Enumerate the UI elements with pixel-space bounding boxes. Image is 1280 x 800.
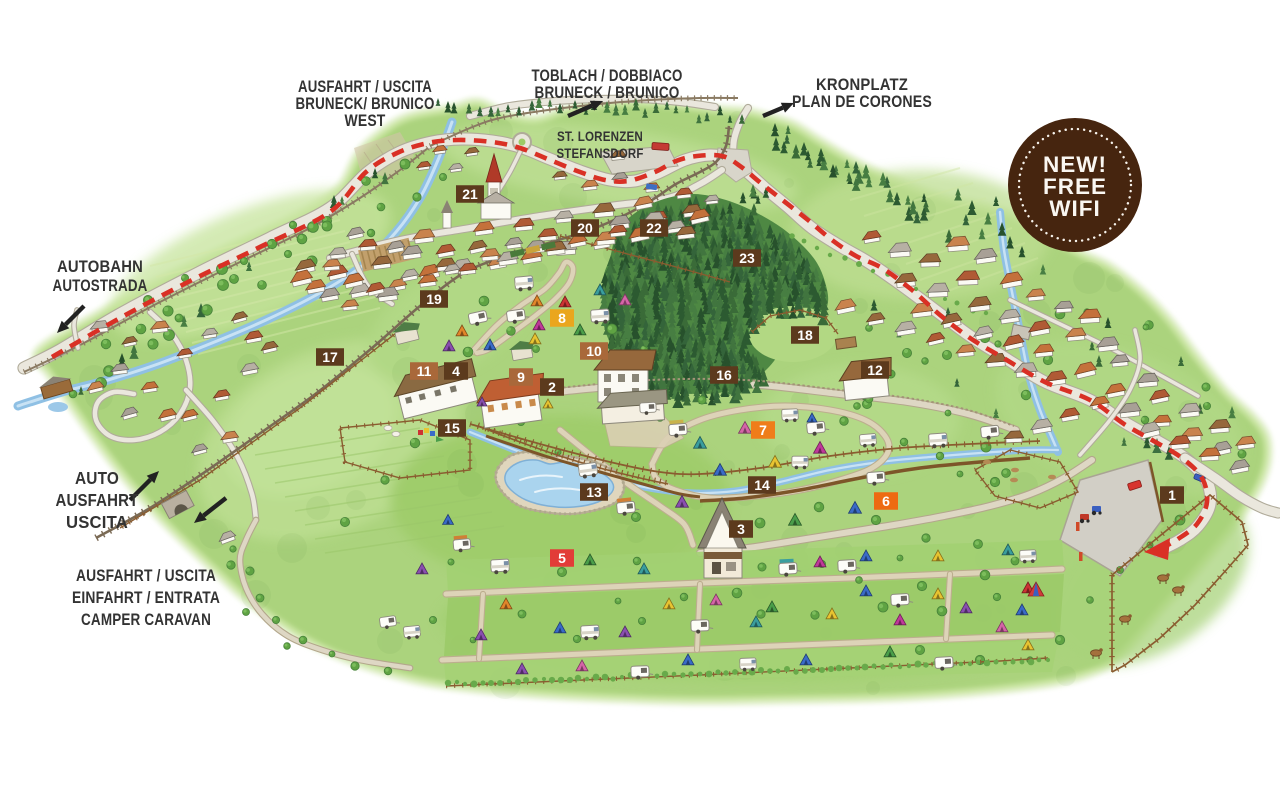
svg-text:2: 2 [548, 379, 556, 395]
svg-text:7: 7 [759, 422, 767, 438]
svg-text:21: 21 [462, 186, 478, 202]
svg-text:TOBLACH / DOBBIACOBRUNECK / BR: TOBLACH / DOBBIACOBRUNECK / BRUNICO [532, 67, 683, 102]
svg-text:15: 15 [444, 420, 460, 436]
svg-text:AUSFAHRT / USCITAEINFAHRT / EN: AUSFAHRT / USCITAEINFAHRT / ENTRATACAMPE… [72, 567, 220, 629]
svg-text:8: 8 [558, 310, 566, 326]
svg-text:18: 18 [797, 327, 813, 343]
svg-text:6: 6 [882, 493, 890, 509]
svg-text:5: 5 [558, 550, 566, 566]
svg-text:NEW!FREEWIFI: NEW!FREEWIFI [1043, 152, 1107, 221]
svg-text:1: 1 [1168, 487, 1176, 503]
svg-text:10: 10 [586, 343, 602, 359]
svg-text:13: 13 [586, 484, 602, 500]
svg-text:22: 22 [646, 220, 662, 236]
svg-text:AUTOBAHNAUTOSTRADA: AUTOBAHNAUTOSTRADA [53, 258, 148, 295]
svg-text:11: 11 [417, 363, 432, 379]
svg-text:19: 19 [426, 291, 442, 307]
svg-text:ST. LORENZENSTEFANSDORF: ST. LORENZENSTEFANSDORF [557, 128, 644, 161]
svg-text:KRONPLATZPLAN DE CORONES: KRONPLATZPLAN DE CORONES [792, 76, 932, 111]
svg-text:23: 23 [739, 250, 755, 266]
svg-text:20: 20 [577, 220, 593, 236]
svg-text:17: 17 [322, 349, 338, 365]
svg-text:16: 16 [716, 367, 732, 383]
svg-text:3: 3 [737, 521, 745, 537]
svg-text:9: 9 [517, 369, 525, 385]
svg-text:12: 12 [867, 362, 883, 378]
svg-text:4: 4 [452, 363, 460, 379]
svg-text:14: 14 [754, 477, 770, 493]
